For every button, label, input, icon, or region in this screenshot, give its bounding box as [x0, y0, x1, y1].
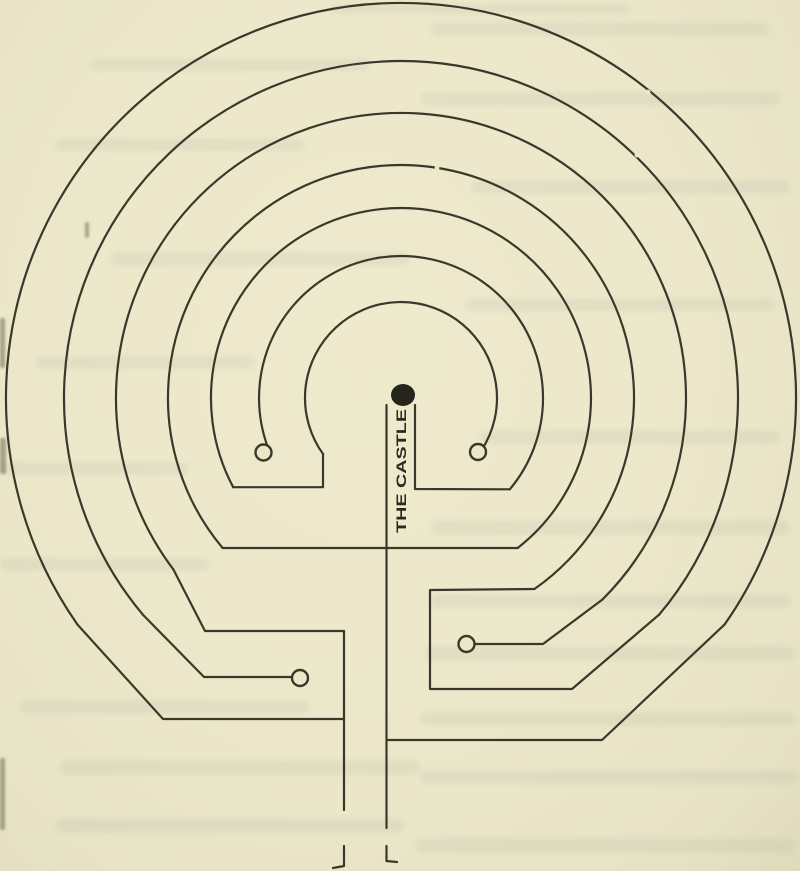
dead-end-ring-inner-right: [470, 444, 486, 460]
scan-gap-4: [435, 166, 440, 171]
castle-dot: [391, 384, 415, 406]
left-dead-end-stub: [143, 615, 292, 677]
outer-right-return: [387, 625, 725, 740]
dead-end-ring-lower-left: [292, 670, 308, 686]
dead-end-ring-lower-right: [459, 636, 475, 652]
castle-label: THE CASTLE: [393, 409, 409, 533]
scanned-book-page: THE CASTLE: [0, 0, 800, 871]
scan-gap-5: [541, 201, 546, 206]
labyrinth-diagram: THE CASTLE: [0, 0, 800, 871]
inner-left-link: [233, 454, 323, 487]
right-entry-foot: [387, 846, 398, 862]
scan-gap-3: [473, 170, 478, 175]
right-dead-end-stub: [476, 600, 603, 645]
left-entry-foot: [333, 846, 344, 868]
scan-gap-1: [646, 90, 651, 95]
scan-gap-2: [635, 153, 640, 158]
dead-end-ring-inner-left: [256, 445, 272, 461]
scan-gap-6: [498, 111, 503, 116]
left-entry-wall: [173, 570, 344, 811]
